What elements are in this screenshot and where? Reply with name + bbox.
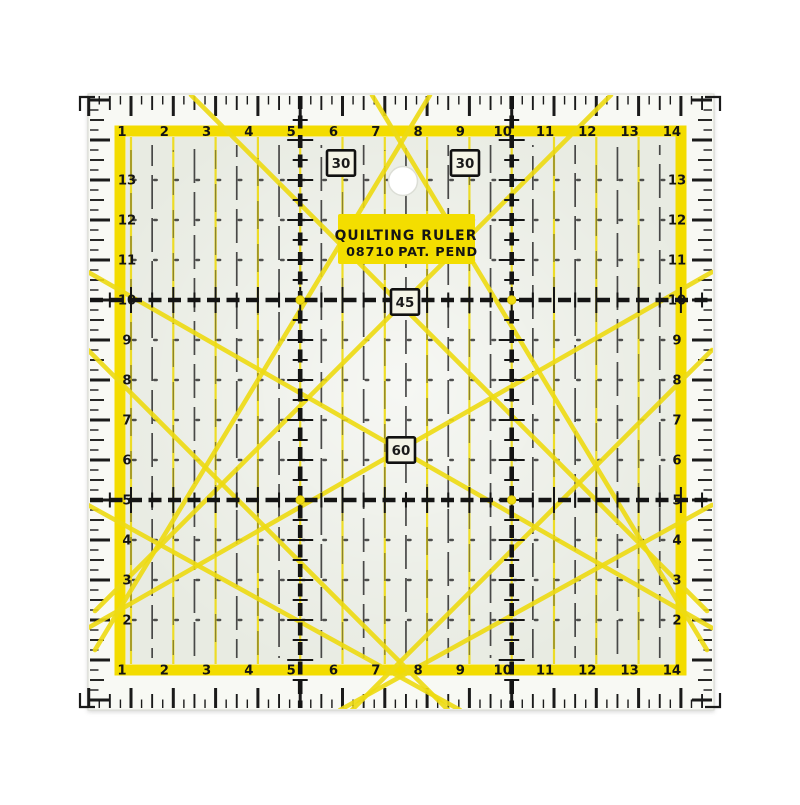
- top-scale-number: 10: [494, 125, 512, 140]
- left-scale-number: 9: [122, 334, 131, 349]
- bottom-scale-number: 1: [117, 664, 126, 679]
- top-scale-number: 8: [414, 125, 423, 140]
- left-scale-number: 4: [122, 534, 131, 549]
- grid-intersection-dot: [508, 296, 516, 304]
- left-scale-number: 12: [118, 214, 136, 229]
- svg-text:08710 PAT. PEND: 08710 PAT. PEND: [346, 245, 478, 260]
- angle-value: 45: [396, 296, 415, 311]
- right-scale-number: 8: [672, 374, 681, 389]
- top-scale-number: 13: [620, 125, 638, 140]
- label-patent: PAT. PEND: [398, 245, 478, 260]
- center-label: QUILTING RULER 08710 PAT. PEND: [335, 214, 478, 264]
- top-scale-number: 11: [536, 125, 554, 140]
- angle-marker-30: 30: [327, 150, 355, 175]
- right-scale-number: 12: [668, 214, 686, 229]
- right-scale-number: 7: [672, 414, 681, 429]
- bottom-scale-number: 6: [329, 664, 338, 679]
- left-scale-number: 3: [122, 574, 131, 589]
- left-scale-number: 10: [118, 294, 136, 309]
- bottom-scale-number: 11: [536, 664, 554, 679]
- bottom-scale-number: 3: [202, 664, 211, 679]
- top-scale-number: 3: [202, 125, 211, 140]
- angle-value: 30: [456, 157, 475, 172]
- angle-marker-60: 60: [387, 437, 415, 462]
- right-scale-number: 13: [668, 174, 686, 189]
- top-scale-number: 1: [117, 125, 126, 140]
- top-scale-number: 2: [160, 125, 169, 140]
- angle-marker-45: 45: [391, 289, 419, 314]
- left-scale-number: 7: [122, 414, 131, 429]
- bottom-scale-number: 5: [287, 664, 296, 679]
- right-scale-number: 2: [672, 614, 681, 629]
- top-scale-number: 7: [371, 125, 380, 140]
- grid-intersection-dot: [508, 496, 516, 504]
- right-scale-number: 11: [668, 254, 686, 269]
- bottom-scale-number: 12: [578, 664, 596, 679]
- bottom-scale-number: 8: [414, 664, 423, 679]
- bottom-scale-number: 7: [371, 664, 380, 679]
- top-scale-number: 4: [244, 125, 253, 140]
- top-scale-number: 9: [456, 125, 465, 140]
- ruler-graphic: QUILTING RULER 08710 PAT. PEND 30304560 …: [0, 0, 800, 800]
- angle-marker-30: 30: [451, 150, 479, 175]
- right-scale-number: 4: [672, 534, 681, 549]
- left-scale-number: 6: [122, 454, 131, 469]
- right-scale-number: 10: [668, 294, 686, 309]
- right-scale-number: 9: [672, 334, 681, 349]
- label-model: 08710: [346, 245, 395, 260]
- top-scale-number: 6: [329, 125, 338, 140]
- label-title: QUILTING RULER: [335, 228, 478, 244]
- left-scale-number: 13: [118, 174, 136, 189]
- right-scale-number: 6: [672, 454, 681, 469]
- bottom-scale-number: 10: [494, 664, 512, 679]
- top-scale-number: 5: [287, 125, 296, 140]
- bottom-scale-number: 13: [620, 664, 638, 679]
- bottom-scale-number: 9: [456, 664, 465, 679]
- bottom-scale-number: 4: [244, 664, 253, 679]
- angle-value: 30: [332, 157, 351, 172]
- angle-value: 60: [392, 444, 411, 459]
- grid-intersection-dot: [296, 496, 304, 504]
- bottom-scale-number: 14: [663, 664, 681, 679]
- quilting-ruler-product-photo: QUILTING RULER 08710 PAT. PEND 30304560 …: [0, 0, 800, 800]
- top-scale-number: 12: [578, 125, 596, 140]
- right-scale-number: 3: [672, 574, 681, 589]
- left-scale-number: 2: [122, 614, 131, 629]
- left-scale-number: 11: [118, 254, 136, 269]
- right-scale-number: 5: [672, 494, 681, 509]
- left-scale-number: 5: [122, 494, 131, 509]
- top-scale-number: 14: [663, 125, 681, 140]
- bottom-scale-number: 2: [160, 664, 169, 679]
- grid-intersection-dot: [296, 296, 304, 304]
- left-scale-number: 8: [122, 374, 131, 389]
- hanging-hole: [389, 167, 418, 196]
